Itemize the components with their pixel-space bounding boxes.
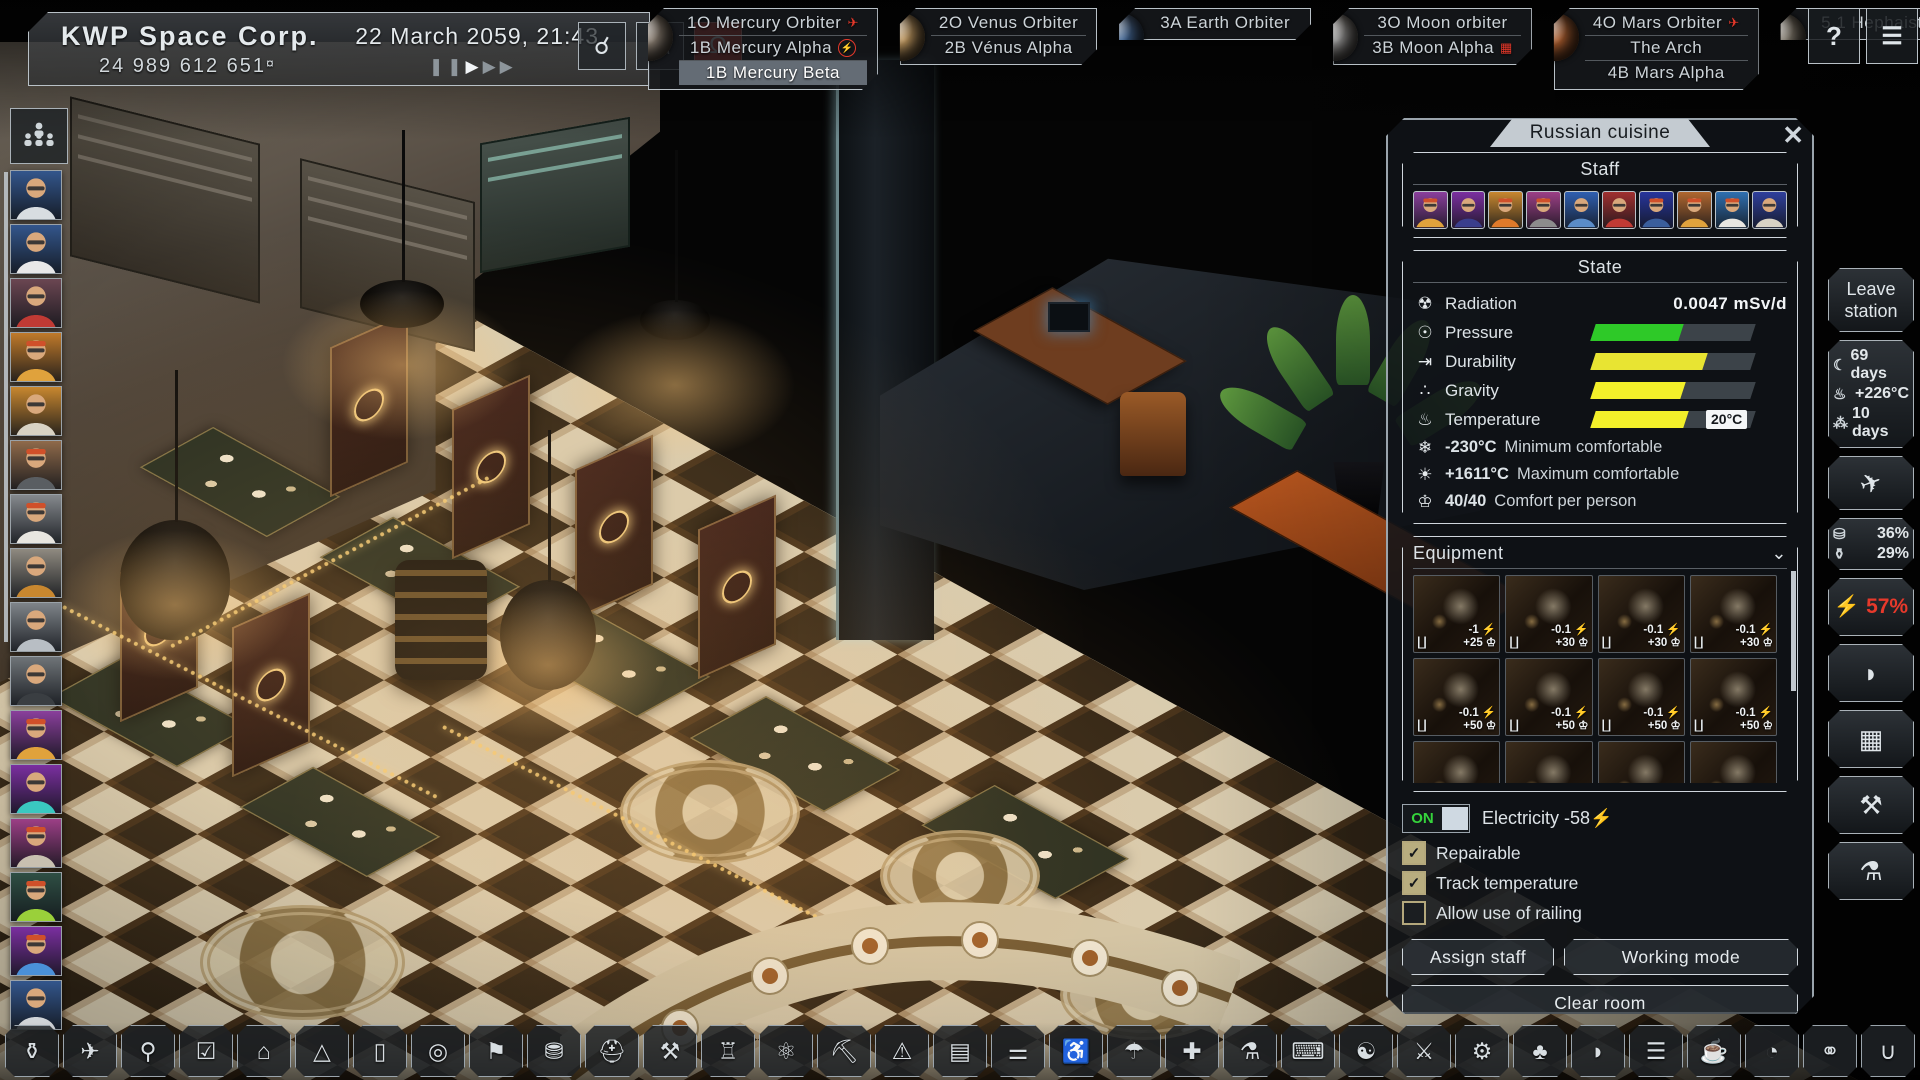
electricity-row: ON Electricity -58⚡ [1402,804,1798,833]
resource-value: 36% [1877,525,1909,543]
staff-avatar[interactable] [1564,191,1599,229]
safety-button[interactable]: ☑ [179,1025,233,1077]
ship-alert-icon: ✈ [1728,15,1739,31]
crew-avatar [11,603,61,651]
crew-portrait[interactable] [10,710,62,760]
state-bar: 20°C [1590,411,1756,428]
note-label: Minimum comfortable [1505,438,1663,457]
electric-hazard-icon: ⚠ [892,1038,913,1065]
asteroid-icon [1758,13,1806,61]
datetime-readout: 22 March 2059, 21:43 [309,23,599,50]
state-row-temperature: ♨Temperature20°C [1413,405,1787,434]
crew-scrollbar[interactable] [4,172,8,642]
location-tab-label: 2B Vénus Alpha [945,38,1073,58]
equipment-item-stats: -0.1 ⚡+30 ♔ [1736,624,1773,650]
staff-avatar[interactable] [1639,191,1674,229]
rail-category-buttons: ◗▦⚒⚗ [1828,644,1914,900]
state-rows: ☢Radiation0.0047 mSv/d☉Pressure⇥Durabili… [1413,289,1787,434]
cutlery-icon: ⚔ [1414,1038,1435,1065]
staff-avatar-figure [1678,192,1711,228]
sushi-icon: ⚭ [1820,1038,1839,1065]
equipment-power-stat: -0.1 ⚡ [1643,707,1680,720]
room-action-row: Assign staff Working mode [1402,939,1798,975]
state-row-radiation: ☢Radiation0.0047 mSv/d [1413,289,1787,318]
robotics-button[interactable]: ♖ [701,1025,755,1077]
equipment-item[interactable]: ∐-0.1 ⚡ [1598,741,1685,783]
airlock-button[interactable]: ◎ [411,1025,465,1077]
location-tab[interactable]: The Arch [1585,35,1748,60]
staff-avatar[interactable] [1488,191,1523,229]
location-tab-label: 3B Moon Alpha [1372,38,1494,58]
crew-avatar [11,927,61,975]
cart-icon: ∐ [1602,717,1612,733]
staff-avatar-figure [1565,192,1598,228]
crew-avatar [11,441,61,489]
salad-bar-button[interactable]: ∪ [1861,1025,1915,1077]
crew-avatar [11,819,61,867]
crew-avatar [11,333,61,381]
noodle-bowl-icon: ☕ [1700,1038,1729,1065]
equipment-item-stats: -0.1 ⚡+50 ♔ [1551,707,1588,733]
buildings-button[interactable]: ▦ [1828,710,1914,768]
staff-avatar[interactable] [1451,191,1486,229]
equipment-comfort-stat: +25 ♔ [1463,637,1496,650]
equipment-item-stats: -0.1 ⚡+50 ♔ [1736,707,1773,733]
medbay-button[interactable]: ✚ [1165,1025,1219,1077]
equipment-comfort-stat: +30 ♔ [1551,637,1588,650]
cart-icon: ∐ [1417,717,1427,733]
crew-sidebar [10,108,70,1030]
laboratory-button[interactable]: ⚗ [1223,1025,1277,1077]
state-row-durability: ⇥Durability [1413,347,1787,376]
computer-button[interactable]: ⌨ [1281,1025,1335,1077]
flask-icon: ⚗ [1859,856,1882,887]
power-warning-value: 57% [1866,595,1908,619]
handshake-icon: ☌ [594,32,610,61]
ramp-icon: △ [313,1038,331,1065]
electricity-toggle[interactable]: ON [1402,804,1470,833]
checkbox[interactable]: ✓ [1402,841,1426,865]
equipment-item[interactable]: ∐-0.1 ⚡+50 ♔ [1413,658,1500,736]
equipment-power-stat: -0.1 ⚡ [1551,707,1588,720]
resource-value: 29% [1877,545,1909,563]
outside-temperature-icon: ♨ [1833,385,1846,403]
equipment-item[interactable]: ∐-0.1 ⚡+30 ♔ [1598,575,1685,653]
life-support-button[interactable]: ⚙ [1455,1025,1509,1077]
checkbox-label: Repairable [1436,843,1521,864]
top-bar: KWP Space Corp. 24 989 612 651¤ 22 March… [0,0,1920,100]
equipment-comfort-stat: +30 ♔ [1643,637,1680,650]
equipment-power-stat: -0.1 ⚡ [1736,707,1773,720]
crew-avatar [11,711,61,759]
crew-portrait[interactable] [10,926,62,976]
state-note: ♔40/40Comfort per person [1413,488,1787,515]
state-label: Temperature [1445,410,1540,430]
equipment-item[interactable]: ∐-0.1 ⚡+50 ♔ [1505,658,1592,736]
crew-portrait[interactable] [10,602,62,652]
state-label: Radiation [1445,294,1517,314]
resource-stat: ⚱29% [1833,545,1909,563]
resources-panel: ⛁36%⚱29% [1828,518,1914,570]
staff-avatar-figure [1489,192,1522,228]
location-tabs: 1O Mercury Orbiter✈1B Mercury Alpha⚡1B M… [648,8,1920,90]
staff-avatar-figure [1753,192,1786,228]
location-group-venus: 2O Venus Orbiter2B Vénus Alpha [900,8,1097,65]
staff-avatar[interactable] [1715,191,1750,229]
ramp-button[interactable]: △ [295,1025,349,1077]
equipment-comfort-stat: +50 ♔ [1459,720,1496,733]
lightning-icon: ⚡ [1590,808,1612,828]
canteen-button[interactable]: ⚔ [1397,1025,1451,1077]
crew-portrait[interactable] [10,548,62,598]
staff-avatar-figure [1452,192,1485,228]
state-bar [1590,382,1756,399]
close-icon[interactable]: ✕ [1782,120,1804,151]
rocket-icon: ✈ [80,1038,99,1065]
staff-avatar-figure [1603,192,1636,228]
location-tab-label: The Arch [1630,38,1702,58]
location-tab[interactable]: 2O Venus Orbiter [931,11,1086,35]
room-options: ✓Repairable✓Track temperatureAllow use o… [1402,839,1798,927]
crew-list-button[interactable] [10,108,68,164]
crew-avatar [11,765,61,813]
crew-portrait[interactable] [10,224,62,274]
cart-icon: ∐ [1417,634,1427,650]
equipment-comfort-stat: +50 ♔ [1551,720,1588,733]
cart-icon: ∐ [1694,717,1704,733]
location-tab[interactable]: 3O Moon orbiter [1364,11,1521,35]
radiation-icon: ☢ [1413,294,1437,314]
night-cycle-icon: ☾ [1833,356,1846,374]
equipment-power-stat: -0.1 ⚡ [1551,624,1588,637]
state-notes: ❄-230°CMinimum comfortable☀+1611°CMaximu… [1413,434,1787,515]
staff-avatar[interactable] [1677,191,1712,229]
max-temperature-icon: ☀ [1413,465,1437,485]
equipment-item[interactable]: ∐-1 ⚡+25 ♔ [1413,575,1500,653]
sushi-bar-button[interactable]: ⚭ [1803,1025,1857,1077]
location-tab-label: 3O Moon orbiter [1377,13,1507,33]
crew-avatar [11,387,61,435]
greenhouse-button[interactable]: ♣ [1513,1025,1567,1077]
crew-avatar [11,495,61,543]
trade-button[interactable]: ☌ [578,22,626,70]
crew-portrait[interactable] [10,764,62,814]
toilet-icon: ♿ [1062,1038,1091,1065]
working-mode-button[interactable]: Working mode [1564,939,1798,975]
equipment-grid: ∐-1 ⚡+25 ♔∐-0.1 ⚡+30 ♔∐-0.1 ⚡+30 ♔∐-0.1 … [1413,575,1787,783]
checkbox-label: Allow use of railing [1436,903,1582,924]
crew-portrait-list [10,170,70,1030]
state-row-pressure: ☉Pressure [1413,318,1787,347]
note-value: 40/40 [1445,492,1486,511]
shower-button[interactable]: ☂ [1107,1025,1161,1077]
state-note: ❄-230°CMinimum comfortable [1413,434,1787,461]
toilet-button[interactable]: ♿ [1049,1025,1103,1077]
location-tab-label: 1O Mercury Orbiter [687,13,841,33]
staff-avatar-figure [1527,192,1560,228]
state-bar-fill [1590,411,1688,428]
pressure-icon: ☉ [1413,323,1437,343]
help-button[interactable]: ? [1808,8,1860,64]
right-rail: Leave station ☾69 days♨+226°C⁂10 days ✈ … [1828,268,1914,900]
state-bar-fill [1590,353,1708,370]
location-tab-label: 1B Mercury Beta [706,63,840,83]
option-allow-use-of-railing[interactable]: Allow use of railing [1402,899,1798,927]
min-temperature-icon: ❄ [1413,438,1437,458]
tools-icon: ⚒ [660,1038,681,1065]
demolish-button[interactable]: ⚱ [5,1025,59,1077]
play-button[interactable]: ▶ [466,57,483,76]
location-tab-label: 4O Mars Orbiter [1593,13,1722,33]
state-bar [1590,353,1756,370]
state-bar-fill [1590,324,1684,341]
environment-panel: ☾69 days♨+226°C⁂10 days [1828,340,1914,448]
equipment-heading-label: Equipment [1413,543,1504,564]
equipment-comfort-stat: +50 ♔ [1736,720,1773,733]
equipment-section: Equipment ⌄ ∐-1 ⚡+25 ♔∐-0.1 ⚡+30 ♔∐-0.1 … [1402,536,1798,792]
equipment-power-stat: -0.1 ⚡ [1736,624,1773,637]
note-value: -230°C [1445,438,1497,457]
location-tab[interactable]: 4O Mars Orbiter✈ [1585,11,1748,35]
cart-icon: ∐ [1602,634,1612,650]
fastest-forward-button[interactable]: ▶ [500,57,517,76]
equipment-item[interactable]: ∐-0.1 ⚡ [1413,741,1500,783]
location-tab[interactable]: 3A Earth Orbiter [1150,11,1300,35]
housing-button[interactable]: ⌂ [237,1025,291,1077]
staff-avatar[interactable] [1602,191,1637,229]
company-name: KWP Space Corp. [61,21,319,52]
option-repairable[interactable]: ✓Repairable [1402,839,1798,867]
cart-icon: ∐ [1694,634,1704,650]
note-label: Comfort per person [1494,492,1636,511]
resource-stat: ⛁36% [1833,525,1909,543]
location-tab[interactable]: 1B Mercury Beta [679,60,867,85]
equipment-power-stat: -0.1 ⚡ [1643,624,1680,637]
state-bar-fill [1590,382,1685,399]
storage-box-icon: ⛃ [544,1038,563,1065]
crew-avatar [11,279,61,327]
location-tab[interactable]: 1B Mercury Alpha⚡ [679,35,867,60]
engineering-button[interactable]: ⛑ [585,1025,639,1077]
equipment-item-stats: -0.1 ⚡+30 ♔ [1551,624,1588,650]
staff-avatar[interactable] [1526,191,1561,229]
mars-icon [1531,13,1579,61]
location-tab[interactable]: 2B Vénus Alpha [931,35,1086,60]
lab-flask-icon: ⚗ [1240,1038,1261,1065]
rocket-button[interactable]: ✈ [1828,456,1914,510]
location-tab[interactable]: 1O Mercury Orbiter✈ [679,11,867,35]
drill-icon: ⛏ [829,1038,858,1065]
bakery-button[interactable]: ◗ [1571,1025,1625,1077]
crew-portrait[interactable] [10,386,62,436]
salad-bowl-icon: ∪ [1880,1038,1897,1065]
storage-button[interactable]: ⛃ [527,1025,581,1077]
speed-controls: ❚❚▶▶▶ [429,57,517,77]
power-warning-button[interactable]: ⚡57% [1828,578,1914,636]
environment-stat: ☾69 days [1833,347,1909,383]
room-panel-title: Russian cuisine [1490,119,1710,147]
equipment-item[interactable]: ∐-0.1 ⚡+50 ♔ [1598,658,1685,736]
ship-alert-icon: ✈ [847,15,858,31]
door-button[interactable]: ▯ [353,1025,407,1077]
equipment-item[interactable]: ∐-0.1 ⚡ [1505,741,1592,783]
equipment-item[interactable]: ∐-0.1 ⚡+30 ♔ [1690,575,1777,653]
robot-icon: ♖ [718,1038,739,1065]
gas-bottle-icon: ⚱ [1833,545,1846,563]
location-tab[interactable]: 4B Mars Alpha [1585,60,1748,85]
checkbox[interactable]: ✓ [1402,871,1426,895]
hard-hat-icon: ⛑ [597,1038,626,1065]
location-group-mars: 4O Mars Orbiter✈The Arch4B Mars Alpha [1554,8,1759,90]
burger-button[interactable]: ☰ [1629,1025,1683,1077]
state-section: State ☢Radiation0.0047 mSv/d☉Pressure⇥Du… [1402,250,1798,524]
location-group-moon: 3O Moon orbiter3B Moon Alpha▦ [1333,8,1532,65]
shield-check-icon: ☑ [196,1038,217,1065]
crew-avatar [11,873,61,921]
staff-avatar[interactable] [1413,191,1448,229]
food-overview-button[interactable]: ◗ [1828,644,1914,702]
building-icon: ▦ [1859,724,1884,755]
shower-icon: ☂ [1124,1038,1145,1065]
staff-avatar[interactable] [1752,191,1787,229]
earth-icon [1096,13,1144,61]
crew-portrait[interactable] [10,278,62,328]
recreation-button[interactable]: ☯ [1339,1025,1393,1077]
menu-button[interactable]: ☰ [1866,8,1918,64]
location-group-earth: 3A Earth Orbiter [1119,8,1311,40]
toggle-knob [1442,807,1468,830]
room-panel: Russian cuisine ✕ Staff State ☢Radiation… [1386,118,1814,1014]
venus-icon [877,13,925,61]
location-tab-label: 2O Venus Orbiter [939,13,1078,33]
pie-icon: ◗ [1863,658,1879,689]
crew-portrait[interactable] [10,170,62,220]
staff-heading: Staff [1413,157,1787,185]
moon-icon [1310,13,1358,61]
environment-value: 69 days [1850,347,1909,383]
staff-avatar-figure [1640,192,1673,228]
chevron-down-icon[interactable]: ⌄ [1771,543,1787,564]
environment-stat: ⁂10 days [1833,405,1909,441]
trash-icon: ⚱ [22,1038,41,1065]
crew-icon [21,121,57,151]
equipment-power-stat: -1 ⚡ [1463,624,1496,637]
assign-staff-button[interactable]: Assign staff [1402,939,1554,975]
power-alert-icon: ⚡ [1834,595,1860,619]
medical-cross-icon: ✚ [1182,1038,1201,1065]
lighting-button[interactable]: ⚲ [121,1025,175,1077]
durability-icon: ⇥ [1413,352,1437,372]
equipment-item-stats: -0.1 ⚡+50 ♔ [1459,707,1496,733]
pause-button[interactable]: ❚❚ [429,57,466,76]
meditation-icon: ☯ [1356,1038,1377,1065]
state-label: Durability [1445,352,1516,372]
power-button[interactable]: ⚠ [875,1025,929,1077]
checkbox[interactable] [1402,901,1426,925]
house-icon: ⌂ [257,1038,271,1065]
environment-value: +226°C [1855,385,1909,403]
crew-avatar [11,171,61,219]
environment-stat: ♨+226°C [1833,385,1909,403]
fabricator-button[interactable]: ▤ [933,1025,987,1077]
machine-icon: ▤ [949,1038,971,1065]
mining-button[interactable]: ⛏ [817,1025,871,1077]
money-readout: 24 989 612 651¤ [99,55,276,78]
crew-avatar [11,657,61,705]
location-tab[interactable]: 3B Moon Alpha▦ [1364,35,1521,60]
option-track-temperature[interactable]: ✓Track temperature [1402,869,1798,897]
rocket-icon: ✈ [1855,465,1886,502]
equipment-item-stats: -0.1 ⚡+30 ♔ [1643,624,1680,650]
gravity-icon: ∴ [1413,381,1437,401]
game-root: KWP Space Corp. 24 989 612 651¤ 22 March… [0,0,1920,1080]
equipment-scrollbar[interactable] [1791,571,1796,691]
rocketry-button[interactable]: ✈ [63,1025,117,1077]
cart-icon: ∐ [1509,717,1519,733]
fast-forward-button[interactable]: ▶ [483,57,500,76]
power-alert-icon: ⚡ [838,39,856,57]
pie-icon: ◗ [1591,1038,1605,1065]
plant-icon: ♣ [1532,1038,1547,1065]
signpost-icon: ⚑ [486,1038,507,1065]
location-tab-label: 3A Earth Orbiter [1160,13,1290,33]
workshop-button[interactable]: ⚒ [643,1025,697,1077]
cargo-alert-icon: ▦ [1500,40,1513,56]
equipment-item[interactable]: ∐-0.1 ⚡+50 ♔ [1690,658,1777,736]
crew-portrait[interactable] [10,656,62,706]
computer-icon: ⌨ [1291,1038,1324,1065]
equipment-item-stats: -1 ⚡+25 ♔ [1463,624,1496,650]
staff-avatar-figure [1414,192,1447,228]
state-label: Gravity [1445,381,1499,401]
company-block: KWP Space Corp. 24 989 612 651¤ 22 March… [28,12,650,86]
atom-icon: ⚛ [776,1038,797,1065]
crew-portrait[interactable] [10,872,62,922]
state-label: Pressure [1445,323,1513,343]
equipment-item[interactable]: ∐-0.1 ⚡ [1690,741,1777,783]
temperature-icon: ♨ [1413,410,1437,430]
staff-avatar-figure [1716,192,1749,228]
crew-portrait[interactable] [10,332,62,382]
build-toolbar: ⚱✈⚲☑⌂△▯◎⚑⛃⛑⚒♖⚛⛏⚠▤⚌♿☂✚⚗⌨☯⚔⚙♣◗☰☕◔⚭∪ [0,1022,1920,1080]
crew-portrait[interactable] [10,494,62,544]
state-row-gravity: ∴Gravity [1413,376,1787,405]
door-icon: ▯ [374,1038,387,1065]
leave-station-button[interactable]: Leave station [1828,268,1914,332]
dust-storm-icon: ⁂ [1833,414,1848,432]
bedroom-button[interactable]: ⚌ [991,1025,1045,1077]
state-note: ☀+1611°CMaximum comfortable [1413,461,1787,488]
equipment-comfort-stat: +30 ♔ [1736,637,1773,650]
burger-icon: ☰ [1646,1038,1667,1065]
noodle-bar-button[interactable]: ☕ [1687,1025,1741,1077]
equipment-comfort-stat: +50 ♔ [1643,720,1680,733]
pizzeria-button[interactable]: ◔ [1745,1025,1799,1077]
science-button[interactable]: ⚛ [759,1025,813,1077]
equipment-power-stat: -0.1 ⚡ [1459,707,1496,720]
crew-portrait[interactable] [10,440,62,490]
research-button[interactable]: ⚗ [1828,842,1914,900]
state-bar-value: 20°C [1706,410,1747,429]
currency-sign: ¤ [266,55,276,71]
equipment-item[interactable]: ∐-0.1 ⚡+30 ♔ [1505,575,1592,653]
construction-button[interactable]: ⚒ [1828,776,1914,834]
note-label: Maximum comfortable [1517,465,1679,484]
location-tab-label: 1B Mercury Alpha [690,38,832,58]
crew-avatar [11,225,61,273]
crew-portrait[interactable] [10,818,62,868]
signpost-button[interactable]: ⚑ [469,1025,523,1077]
